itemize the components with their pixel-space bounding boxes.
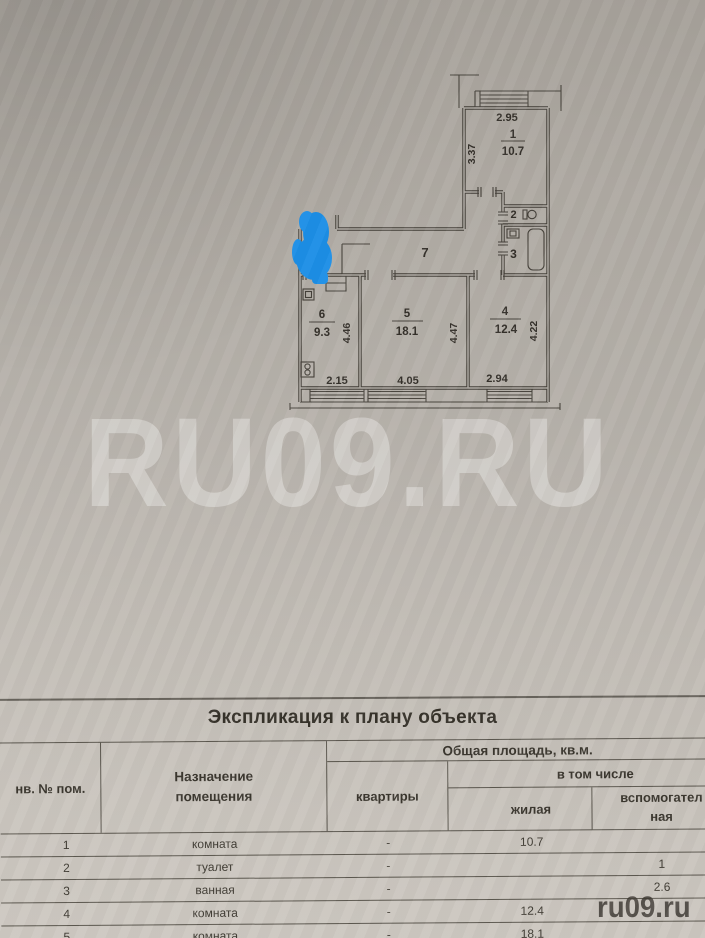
watermark-large: RU09.RU [84,400,611,526]
header-total-area-group: Общая площадь, кв.м. [327,738,705,762]
explication-title: Экспликация к плану объекта [0,707,705,729]
dim-room5-height: 4.47 [448,323,460,344]
room-4-number: 4 [502,306,509,318]
room-2-number: 2 [510,209,516,221]
row-aux-area [593,829,705,852]
room-6-area: 9.3 [314,327,330,339]
row-flat-area: - [328,854,449,877]
plan-labels: 2.95 1 10.7 3.37 7 2 3 6 9.3 4.46 5 18.1… [314,112,540,387]
header-flat: квартиры [327,761,448,831]
header-auxiliary: вспомогател ная [592,786,705,829]
row-purpose: комната [102,832,328,856]
bathtub-icon [528,229,544,270]
fixtures [301,210,544,377]
room-1-number: 1 [510,129,517,141]
explication-table: нв. № пом. Назначение помещения Общая пл… [0,737,705,938]
row-aux-area [593,898,705,921]
blue-marker [292,211,332,284]
row-number: 3 [1,880,102,903]
row-living-area: 18.1 [449,922,593,938]
washbasin-bowl-icon [510,231,516,236]
row-living-area: 12.4 [449,899,593,922]
row-flat-area: - [328,900,449,923]
row-living-area: 10.7 [449,830,593,853]
door-ticks [303,187,508,280]
row-number: 4 [1,903,102,926]
photo-document: 2.95 1 10.7 3.37 7 2 3 6 9.3 4.46 5 18.1… [0,0,705,938]
dim-room5-width: 4.05 [397,375,418,387]
dim-room4-width: 2.94 [486,373,508,385]
room-1-area: 10.7 [502,146,524,158]
header-inv-number: нв. № пом. [0,743,102,834]
room-5-area: 18.1 [396,326,419,338]
dim-top: 2.95 [496,112,517,124]
row-purpose: комната [102,924,328,938]
table-header: нв. № пом. Назначение помещения Общая пл… [0,738,705,834]
row-number: 5 [1,926,102,938]
room-3-number: 3 [510,247,517,261]
row-living-area [449,853,593,876]
room-5-number: 5 [404,308,411,320]
plan-thin-lines [290,75,561,410]
row-number: 2 [1,857,102,880]
dim-room4-height: 4.22 [528,321,540,342]
row-living-area [449,876,593,899]
floor-plan: 2.95 1 10.7 3.37 7 2 3 6 9.3 4.46 5 18.1… [280,60,580,410]
toilet-tank-icon [523,210,527,219]
header-purpose: Назначение помещения [101,741,328,833]
dim-room6-height: 4.46 [341,323,353,344]
room-6-number: 6 [319,309,325,321]
table-top-rule [0,695,705,701]
row-purpose: ванная [102,878,328,902]
washbasin-icon [507,229,519,238]
dim-room6-width: 2.15 [326,375,347,387]
sink-bowl-icon [305,370,310,375]
row-aux-area: 2.6 [593,875,705,898]
header-including: в том числе [448,759,705,788]
row-purpose: комната [102,901,328,925]
row-aux-area [593,921,705,938]
header-living: жилая [448,787,592,830]
stove-burner-icon [306,292,312,298]
room-4-area: 12.4 [495,324,518,336]
row-aux-area: 1 [593,852,705,875]
row-flat-area: - [328,923,449,938]
row-flat-area: - [328,831,449,854]
row-flat-area: - [328,877,449,900]
row-number: 1 [1,834,102,857]
sink-bowl-icon [305,364,310,369]
toilet-icon [528,210,536,218]
corridor-number: 7 [421,245,428,260]
dim-room1-height: 3.37 [466,144,478,165]
row-purpose: туалет [102,855,328,879]
stove-icon [303,289,314,300]
